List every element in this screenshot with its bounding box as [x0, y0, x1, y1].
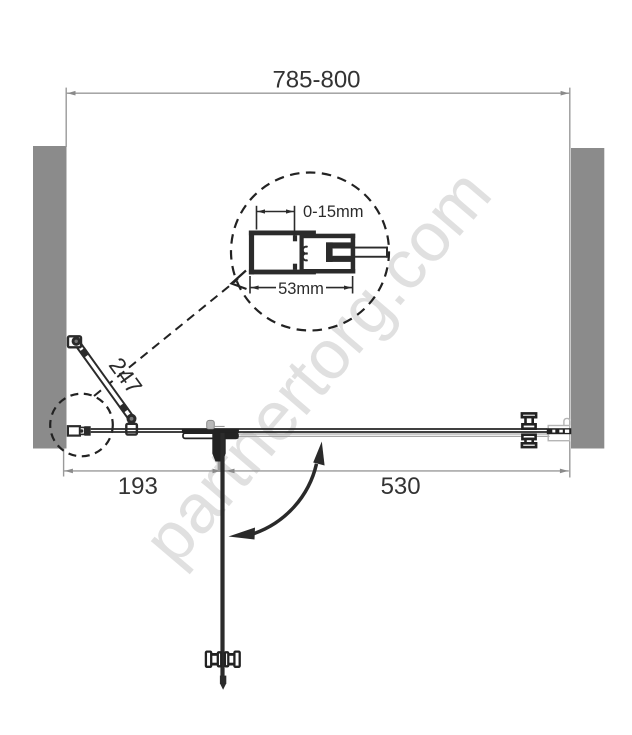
svg-text:0-15mm: 0-15mm	[303, 203, 364, 221]
svg-text:530: 530	[381, 473, 421, 500]
svg-text:193: 193	[118, 473, 158, 500]
svg-text:53mm: 53mm	[278, 280, 324, 298]
svg-text:785-800: 785-800	[272, 66, 360, 93]
